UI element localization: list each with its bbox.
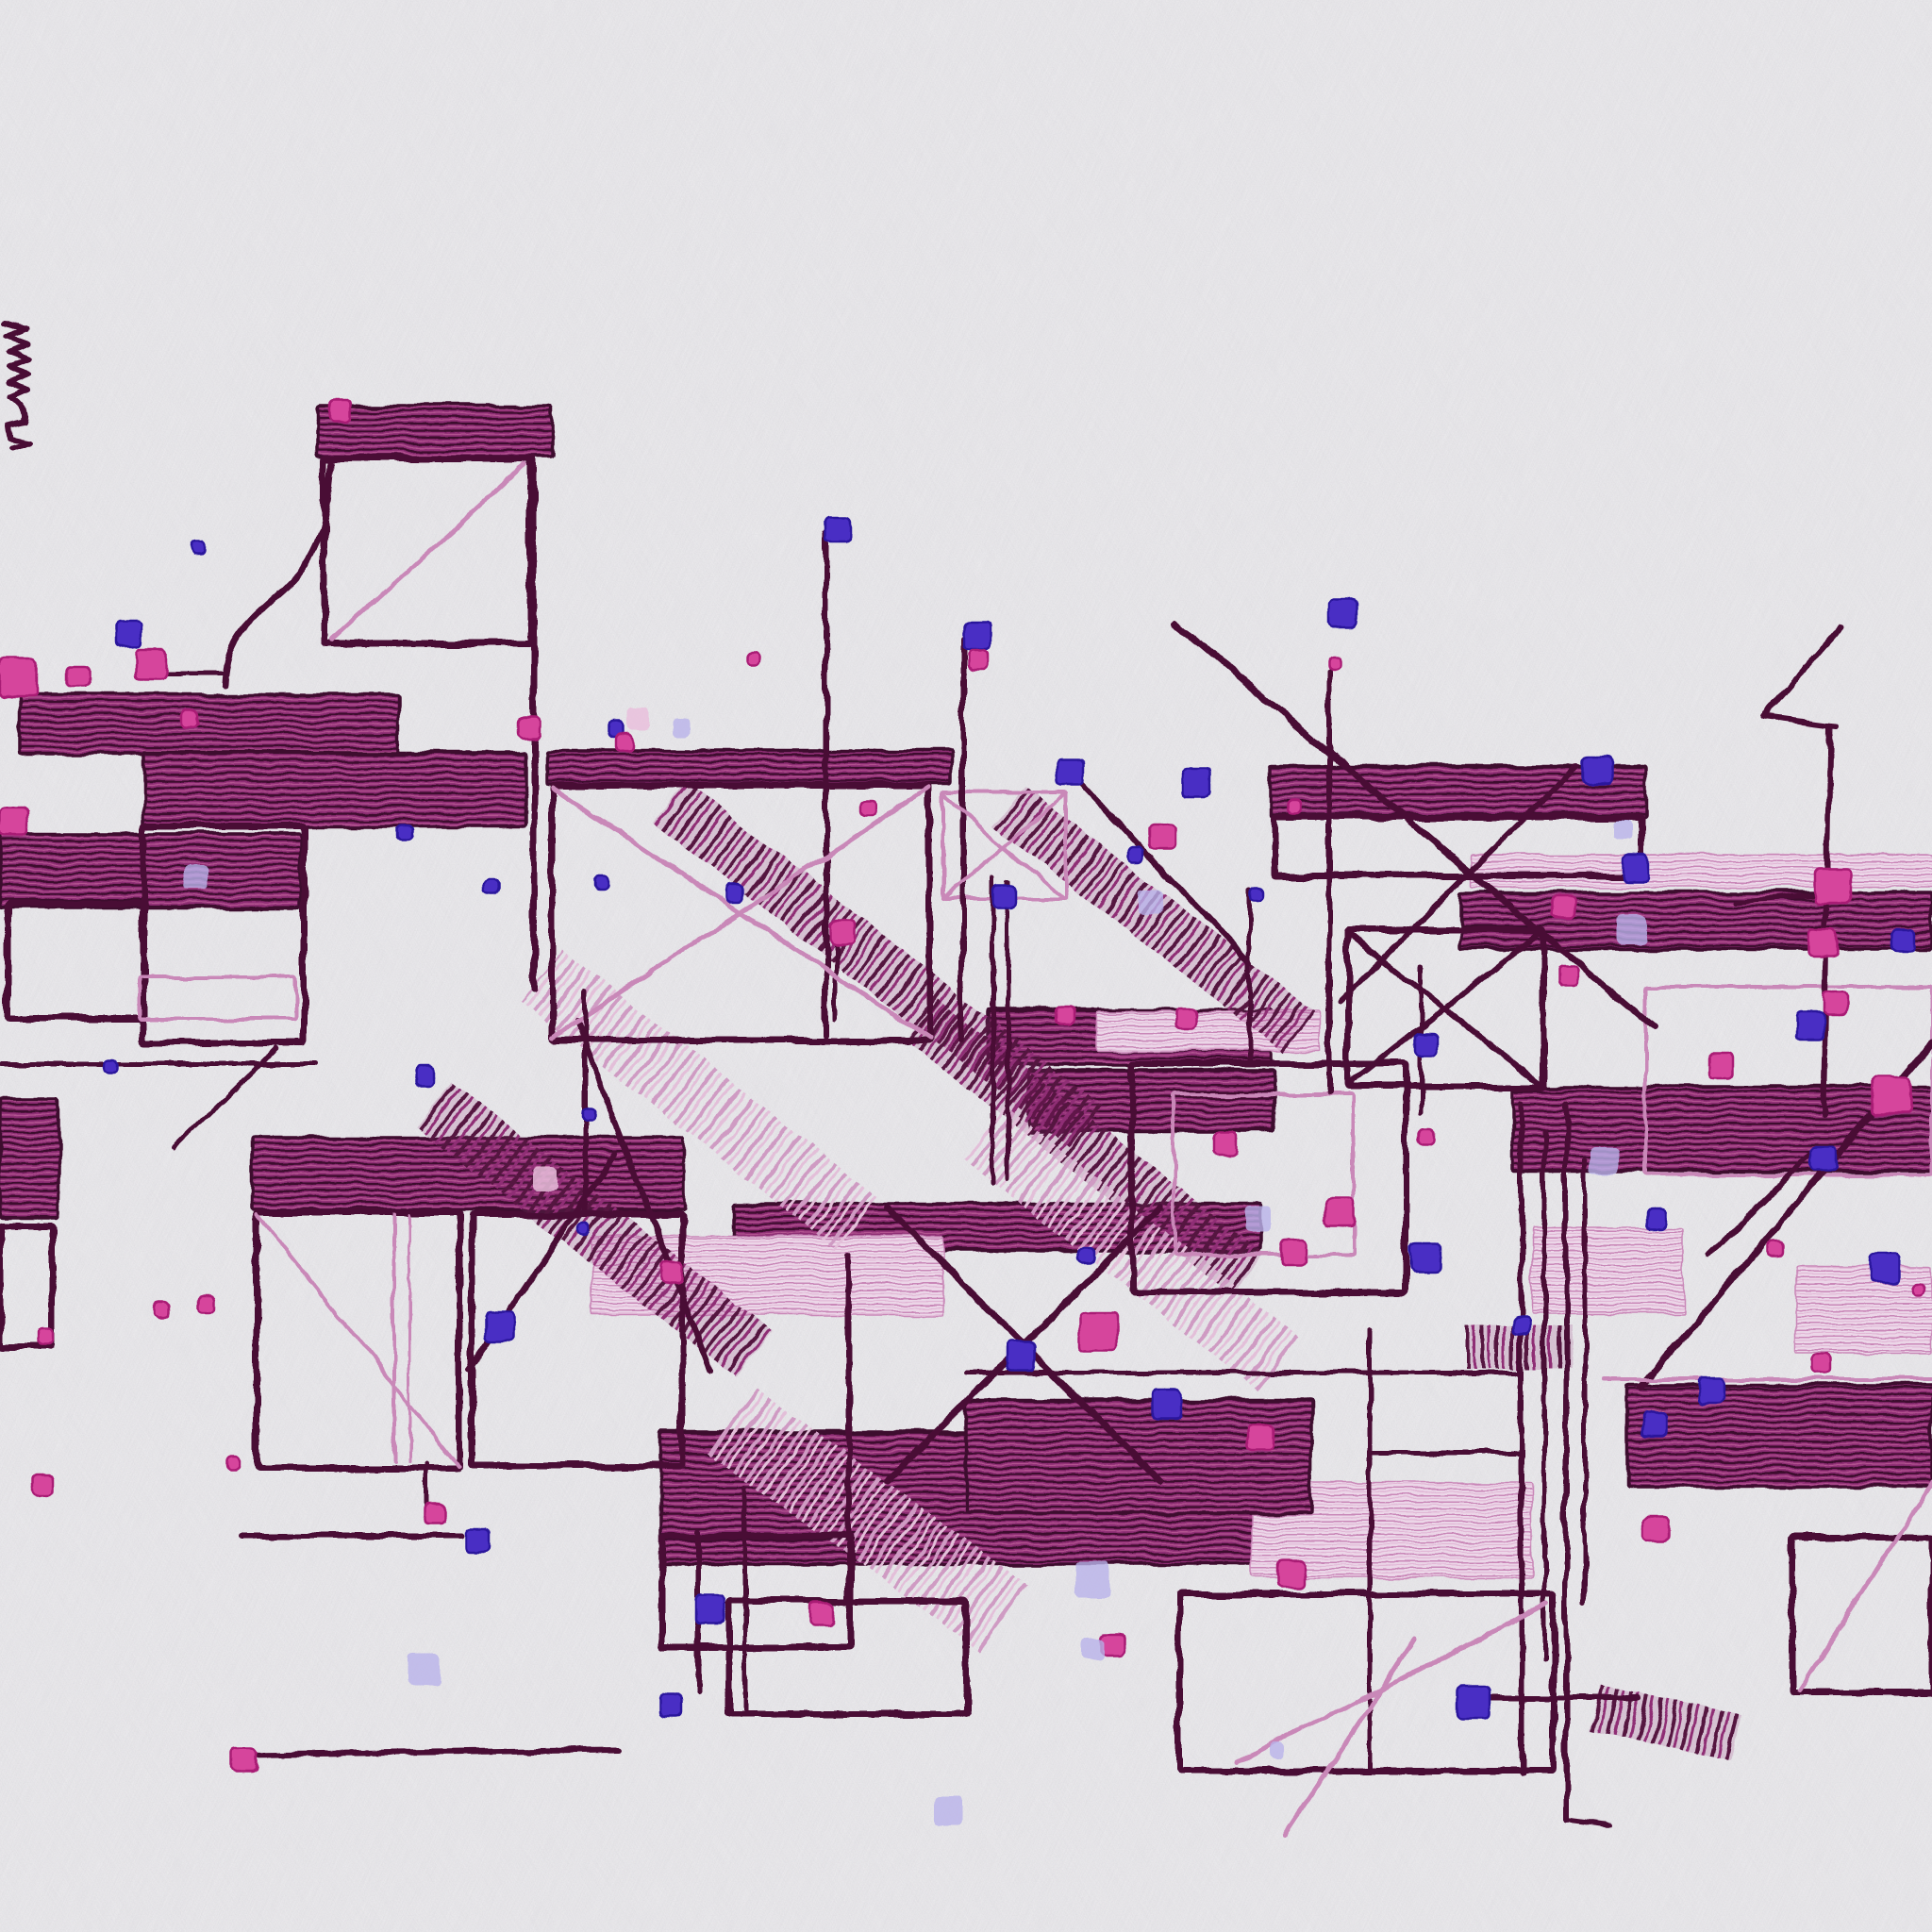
accent-square: [830, 919, 855, 943]
accent-square: [1245, 1207, 1272, 1233]
accent-square: [1457, 1687, 1490, 1719]
accent-square: [672, 718, 691, 737]
accent-square: [1269, 1744, 1284, 1759]
accent-square: [135, 649, 165, 679]
accent-square: [1646, 1209, 1665, 1228]
accent-square: [38, 1328, 55, 1345]
accent-square: [1557, 966, 1577, 987]
accent-square: [811, 1602, 834, 1624]
accent-square: [1797, 1013, 1824, 1040]
accent-square: [465, 1528, 490, 1553]
accent-square: [1816, 869, 1850, 903]
accent-square: [1590, 1146, 1618, 1174]
accent-square: [1250, 888, 1263, 901]
accent-square: [1151, 824, 1175, 849]
accent-square: [1809, 928, 1838, 957]
accent-square: [660, 1696, 681, 1717]
accent-square: [1326, 1199, 1355, 1227]
accent-square: [329, 400, 350, 421]
accent-square: [615, 734, 632, 751]
accent-square: [962, 621, 991, 649]
accent-square: [726, 885, 743, 902]
accent-square: [1642, 1413, 1667, 1438]
accent-square: [626, 708, 649, 730]
hatch-bar: [317, 406, 553, 457]
accent-square: [1913, 1284, 1924, 1295]
accent-square: [1139, 890, 1163, 914]
accent-square: [1768, 1241, 1783, 1256]
accent-square: [934, 1797, 962, 1825]
accent-square: [1174, 1008, 1195, 1028]
accent-square: [1082, 1638, 1105, 1660]
accent-square: [696, 1596, 724, 1624]
hatch-bar: [545, 750, 951, 784]
artwork-stage: [0, 0, 1932, 1932]
accent-square: [1552, 897, 1574, 920]
hatch-bar: [1627, 1385, 1932, 1487]
accent-square: [1812, 1355, 1831, 1374]
accent-square: [1278, 1560, 1305, 1587]
accent-square: [1644, 1516, 1669, 1541]
accent-square: [182, 711, 199, 728]
accent-square: [484, 880, 498, 894]
accent-square: [1330, 600, 1358, 628]
accent-square: [518, 717, 539, 738]
accent-square: [1623, 855, 1649, 881]
accent-square: [533, 1167, 558, 1191]
accent-square: [993, 886, 1016, 908]
accent-square: [1215, 1133, 1238, 1156]
accent-square: [594, 875, 608, 890]
accent-square: [397, 826, 412, 841]
accent-square: [1811, 1146, 1836, 1171]
accent-square: [1075, 1562, 1109, 1596]
accent-square: [1871, 1255, 1899, 1283]
hatch-bar: [19, 694, 398, 755]
accent-square: [1420, 1129, 1435, 1144]
accent-square: [198, 1295, 215, 1312]
accent-square: [486, 1312, 514, 1341]
accent-square: [1328, 657, 1341, 670]
hatch-bar: [1532, 1228, 1683, 1313]
accent-square: [1153, 1391, 1181, 1419]
accent-square: [747, 655, 760, 668]
accent-square: [1891, 929, 1914, 952]
accent-square: [1247, 1424, 1274, 1450]
hatch-bar: [0, 834, 300, 908]
accent-square: [116, 620, 142, 646]
accent-square: [1078, 1248, 1093, 1263]
accent-square: [425, 1503, 445, 1524]
accent-square: [1618, 916, 1646, 944]
artwork-canvas: [0, 0, 1932, 1932]
accent-square: [1058, 1008, 1074, 1024]
accent-square: [1873, 1076, 1910, 1114]
accent-square: [579, 1223, 591, 1234]
accent-square: [1824, 992, 1846, 1015]
accent-square: [1708, 1054, 1733, 1078]
accent-square: [1129, 848, 1144, 863]
hatch-bar: [1513, 1087, 1932, 1172]
accent-square: [967, 650, 988, 671]
accent-square: [156, 1303, 171, 1318]
hatch-bar: [143, 753, 525, 826]
accent-square: [662, 1262, 683, 1283]
hatch-bar: [0, 1099, 58, 1218]
accent-square: [408, 1654, 441, 1686]
accent-square: [226, 1457, 240, 1471]
hatch-bar: [1472, 855, 1932, 887]
accent-square: [1007, 1342, 1035, 1371]
hatch-bar: [1796, 1266, 1932, 1353]
accent-square: [231, 1748, 256, 1773]
accent-square: [825, 518, 850, 542]
accent-square: [106, 1060, 119, 1074]
accent-square: [1281, 1240, 1306, 1264]
accent-square: [1614, 820, 1633, 839]
accent-square: [0, 808, 28, 836]
accent-square: [184, 865, 208, 890]
accent-square: [415, 1067, 434, 1086]
accent-square: [1583, 757, 1611, 785]
accent-square: [1057, 758, 1083, 785]
accent-square: [31, 1474, 52, 1495]
accent-square: [1416, 1033, 1437, 1054]
accent-square: [582, 1108, 595, 1121]
accent-square: [1080, 1312, 1118, 1350]
accent-square: [1288, 800, 1301, 813]
accent-square: [1102, 1634, 1123, 1655]
accent-square: [860, 801, 875, 816]
accent-square: [1182, 768, 1210, 796]
accent-square: [192, 542, 205, 556]
accent-square: [0, 658, 38, 696]
accent-square: [68, 665, 89, 686]
accent-square: [1513, 1318, 1530, 1335]
accent-square: [1698, 1378, 1723, 1403]
accent-square: [1410, 1243, 1439, 1272]
